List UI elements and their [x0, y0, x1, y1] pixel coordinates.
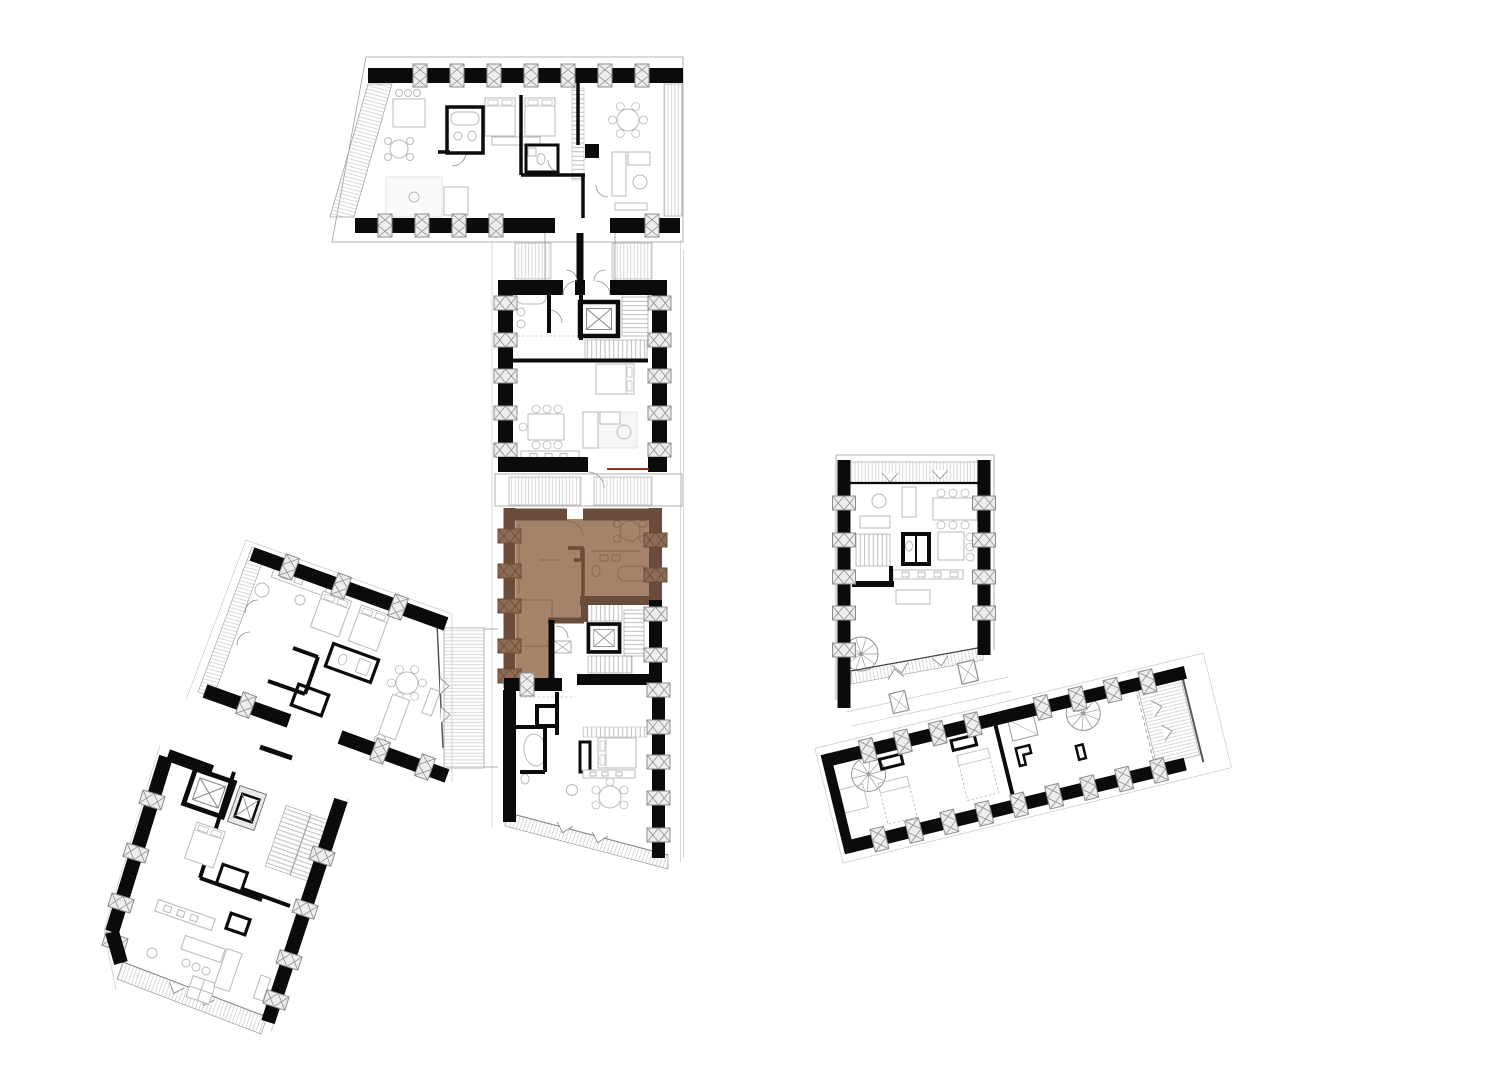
roof-terrace-hatch: [444, 628, 484, 768]
window-pier: [498, 529, 521, 543]
elevator-icon: [580, 302, 618, 336]
building-west-wing: [186, 540, 498, 782]
dining-table: [609, 103, 648, 138]
bed: [310, 591, 351, 637]
stair-flight: [588, 656, 632, 673]
building-east-block: [833, 455, 1013, 726]
elevator-icon: [588, 624, 619, 652]
roof-slope-hatch-west: [330, 84, 392, 217]
floor-plan-canvas: [0, 0, 1500, 1069]
chimney: [585, 144, 599, 158]
bed: [485, 98, 515, 136]
building-southwest-block: [102, 745, 348, 1034]
balcony-hatch: [505, 812, 668, 869]
building-central-upper: [494, 280, 671, 488]
stair-flight: [856, 534, 890, 566]
floor-plan-drawing: [0, 0, 1500, 1069]
west-end-wall: [825, 754, 849, 853]
wc-walls: [526, 145, 558, 172]
terrace-hatch: [850, 462, 984, 483]
bed: [185, 822, 226, 868]
terrace-hatch: [612, 243, 652, 279]
stair-flight: [622, 290, 648, 336]
building-southeast-wing: [815, 653, 1232, 863]
stair-flight: [588, 604, 622, 621]
roof-slope-hatch: [198, 547, 266, 698]
step-wall: [1016, 745, 1034, 766]
roof-slope-hatch-east: [664, 84, 682, 216]
stair-flight: [585, 340, 647, 360]
terrace-central: [495, 474, 682, 506]
stair-flight: [624, 610, 644, 656]
building-central-lower: [503, 673, 670, 869]
kitchenette: [951, 735, 977, 750]
flue: [1076, 744, 1086, 759]
bed: [598, 738, 636, 768]
north-facade: [252, 554, 446, 624]
building-selected-unit[interactable]: [498, 508, 667, 692]
north-facade: [826, 672, 1185, 760]
building-north-wing: [330, 57, 683, 284]
roof-window-icon: [889, 690, 909, 713]
roof-window-icon: [957, 660, 978, 684]
duct-walls: [537, 706, 557, 726]
bed: [525, 98, 555, 136]
bed: [596, 364, 634, 394]
bed: [348, 605, 389, 651]
terrace-hatch: [515, 243, 551, 279]
